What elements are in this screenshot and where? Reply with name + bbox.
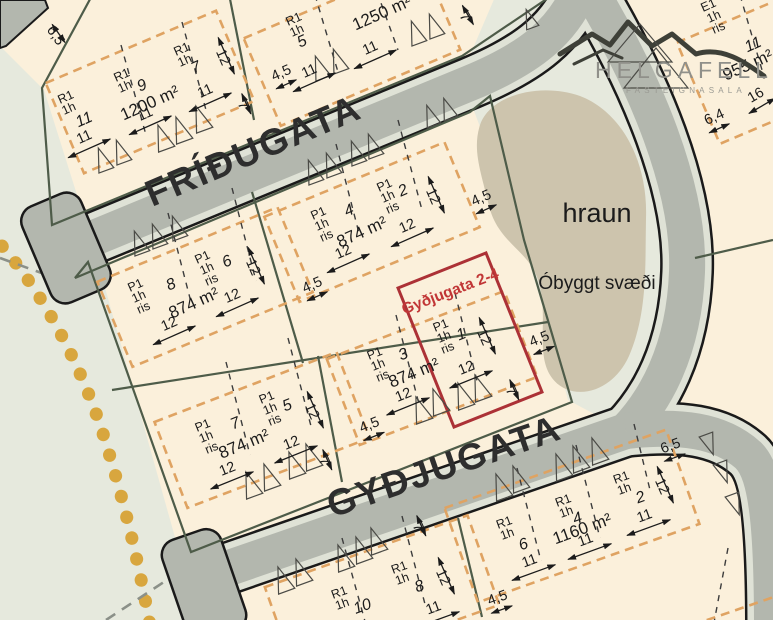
map-canvas: 6,5111111127111174,51212124,51212124,512… (0, 0, 773, 620)
logo-wordmark: HELGAFELL (595, 57, 773, 83)
hraun-label: hraun (562, 198, 631, 228)
logo-subtitle: FASTEIGNASALA (626, 86, 746, 95)
obyggt-svaedi-label: Óbyggt svæði (538, 272, 655, 294)
plot-map: 6,5111111127111174,51212124,51212124,512… (0, 0, 773, 620)
